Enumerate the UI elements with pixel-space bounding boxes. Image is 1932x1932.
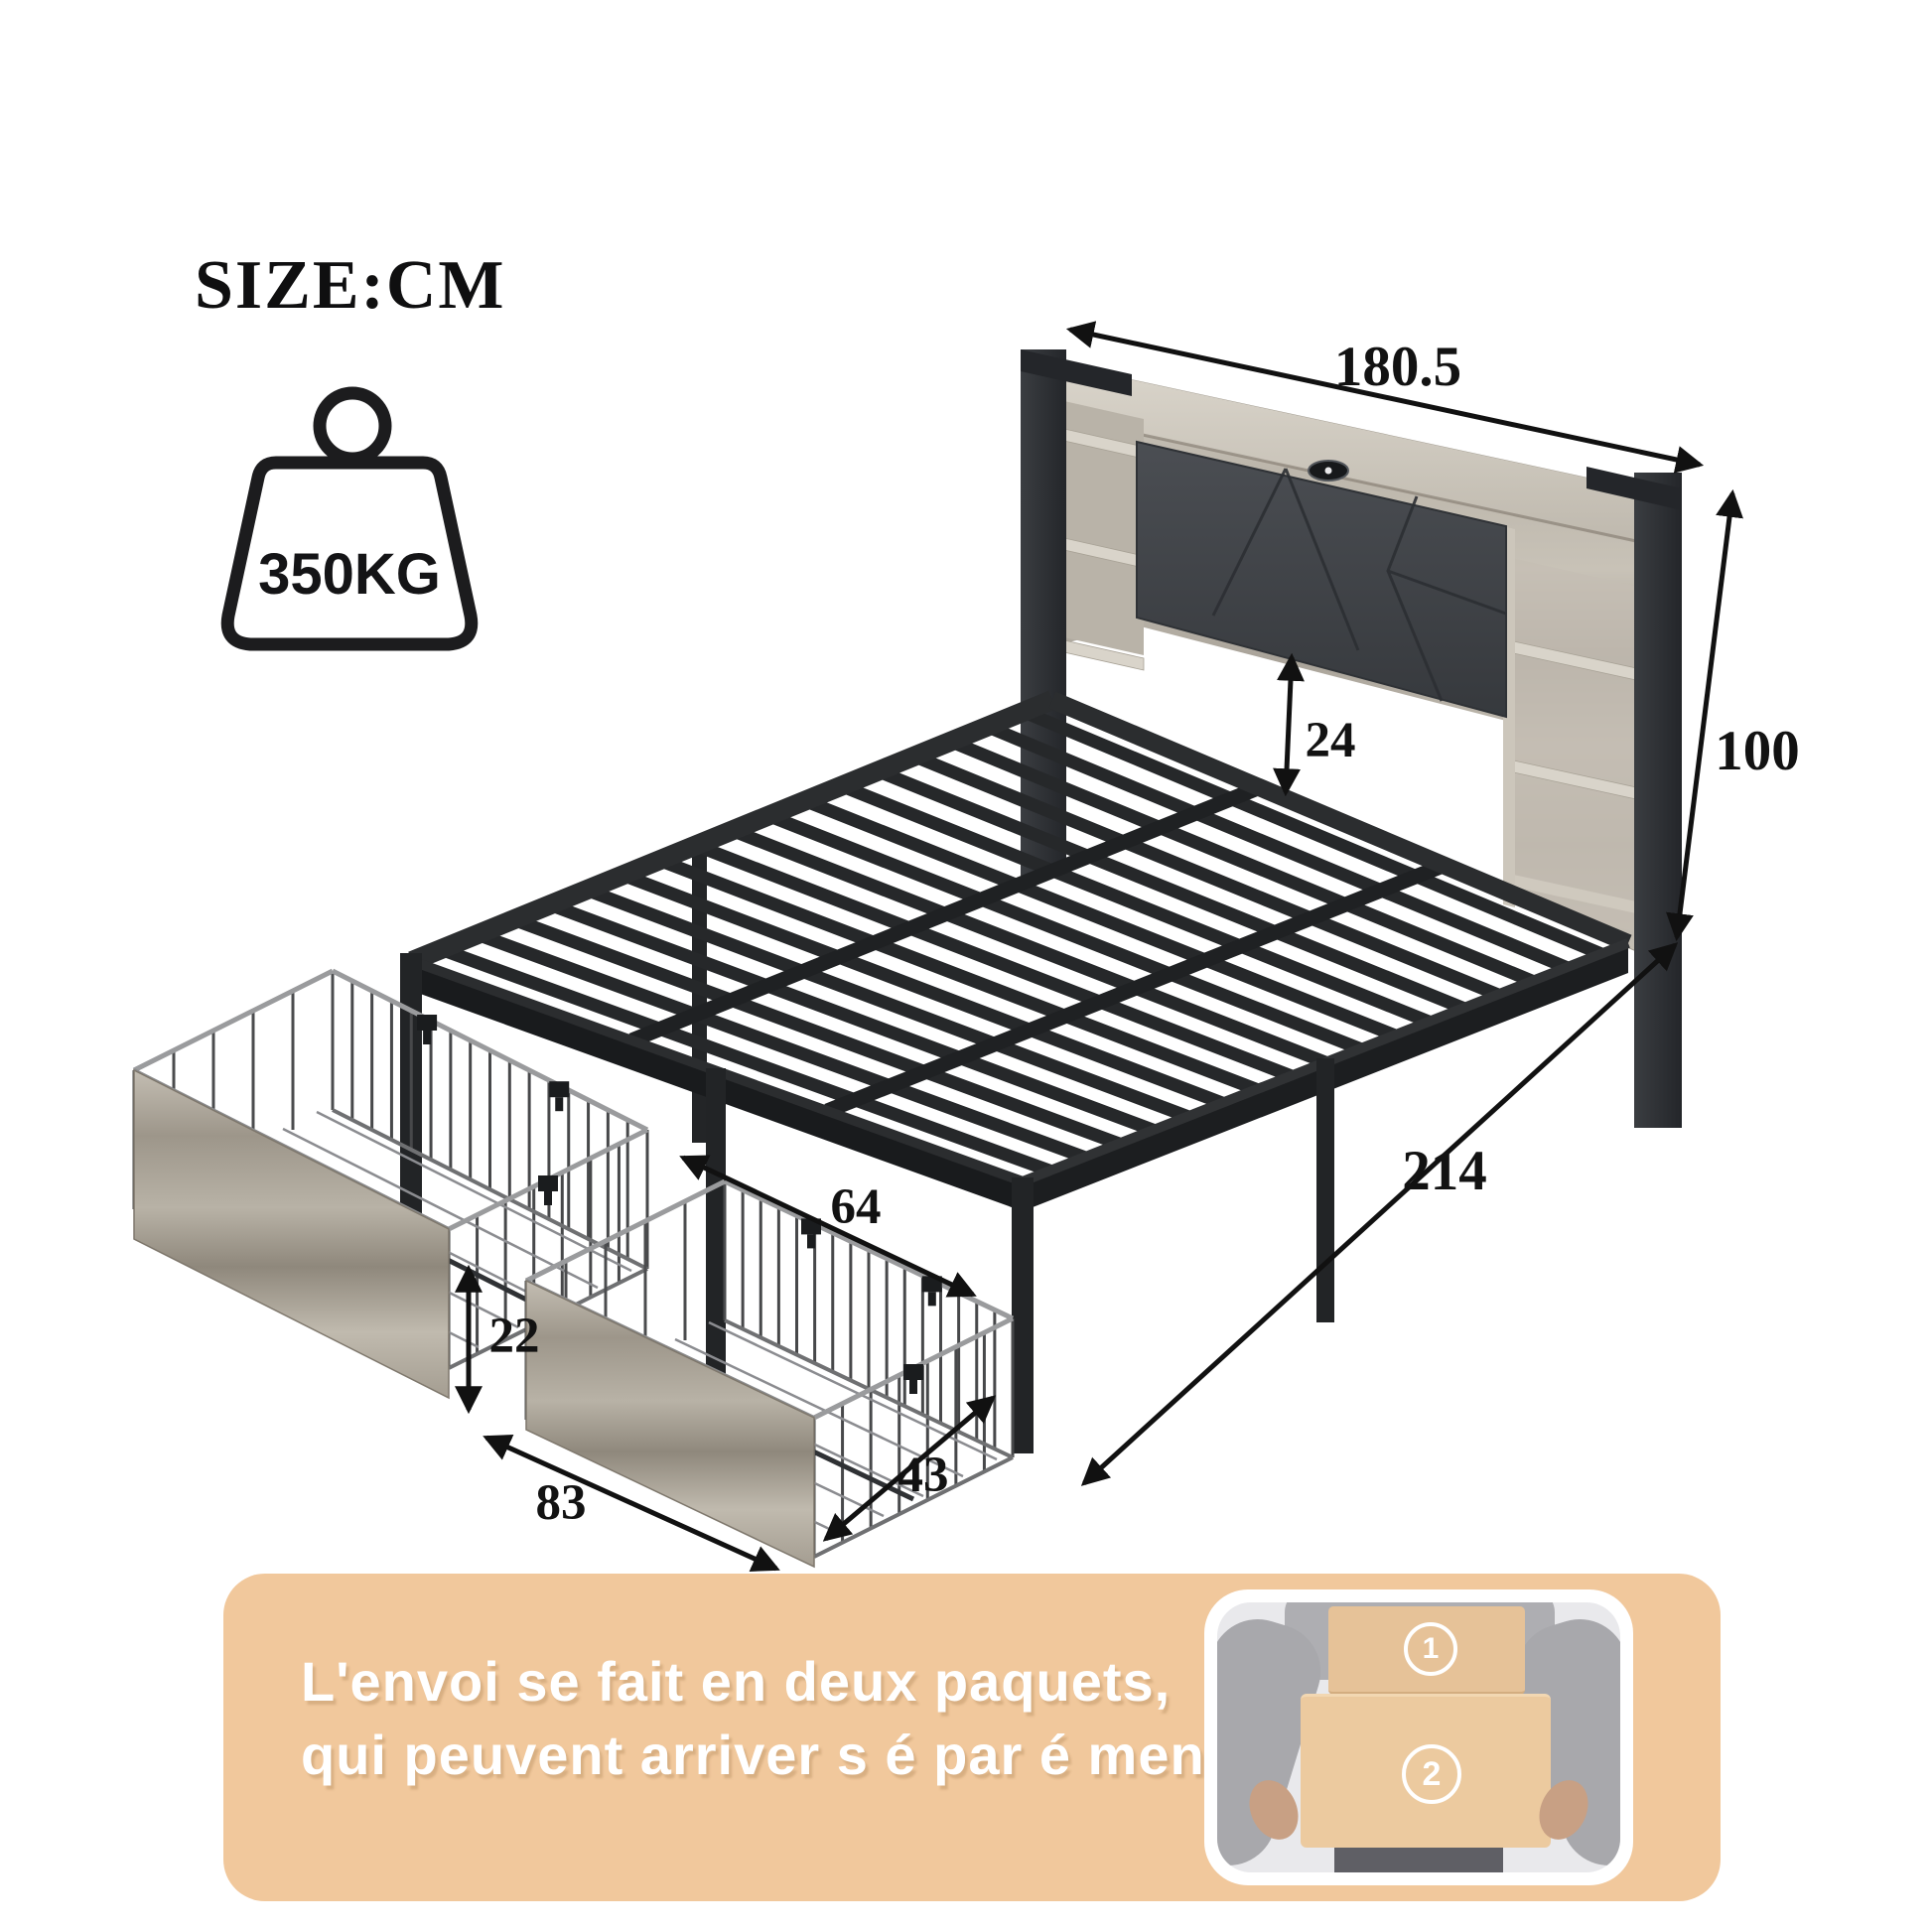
weight-icon-ring [320, 393, 385, 459]
basket-slide-bracket [903, 1364, 923, 1380]
headboard-right-post [1634, 473, 1682, 1128]
dim-drawer-height-label: 22 [489, 1309, 540, 1364]
dim-height-arrow [1677, 493, 1732, 937]
basket-top-rim [526, 1181, 725, 1281]
weight-icon: 350KG [227, 393, 472, 644]
dim-drawer-depth-label: 43 [898, 1448, 949, 1503]
weight-label: 350KG [258, 542, 441, 607]
dim-drawer-top-label: 64 [831, 1179, 882, 1235]
headboard-right-cubby-back [1511, 558, 1634, 931]
bed-leg [1316, 1058, 1334, 1322]
basket-slide-bracket [423, 1031, 431, 1044]
basket-slide-bracket [417, 1015, 437, 1031]
basket-top-rim [134, 971, 333, 1070]
bed-leg [1012, 1177, 1034, 1453]
dim-headboard-gap-label: 24 [1306, 713, 1356, 768]
shipping-photo-frame: 1 2 [1204, 1589, 1633, 1885]
dim-height-label: 100 [1715, 720, 1800, 782]
basket-slide-bracket [544, 1191, 552, 1205]
product-dimension-diagram: SIZE:CM [0, 0, 1932, 1932]
shipping-note: L'envoi se fait en deux paquets, qui peu… [301, 1645, 1241, 1792]
package-box-2: 2 [1301, 1694, 1551, 1848]
shipping-banner: L'envoi se fait en deux paquets, qui peu… [223, 1574, 1721, 1901]
usb-port-light [1325, 468, 1332, 475]
basket-slide-bracket [549, 1081, 569, 1097]
basket-slide-bracket [555, 1097, 563, 1111]
basket-slide-bracket [928, 1292, 936, 1306]
basket-slide-bracket [909, 1380, 917, 1394]
dim-drawer-front-label: 83 [536, 1475, 587, 1531]
basket-slide-bracket [807, 1234, 815, 1248]
box-1-number: 1 [1404, 1622, 1457, 1676]
basket-slide-bracket [538, 1175, 558, 1191]
dim-width-label: 180.5 [1334, 336, 1461, 398]
storage-drawer-2 [526, 1181, 1013, 1567]
box-2-number: 2 [1402, 1744, 1461, 1804]
shipping-note-line1: L'envoi se fait en deux paquets, [301, 1645, 1241, 1719]
package-box-1: 1 [1328, 1606, 1525, 1695]
shipping-note-line2: qui peuvent arriver s é par é ment. [301, 1719, 1241, 1792]
dim-length-label: 214 [1402, 1140, 1487, 1202]
dim-drawer-top-arrow [683, 1158, 973, 1295]
shipping-photo: 1 2 [1217, 1602, 1620, 1872]
